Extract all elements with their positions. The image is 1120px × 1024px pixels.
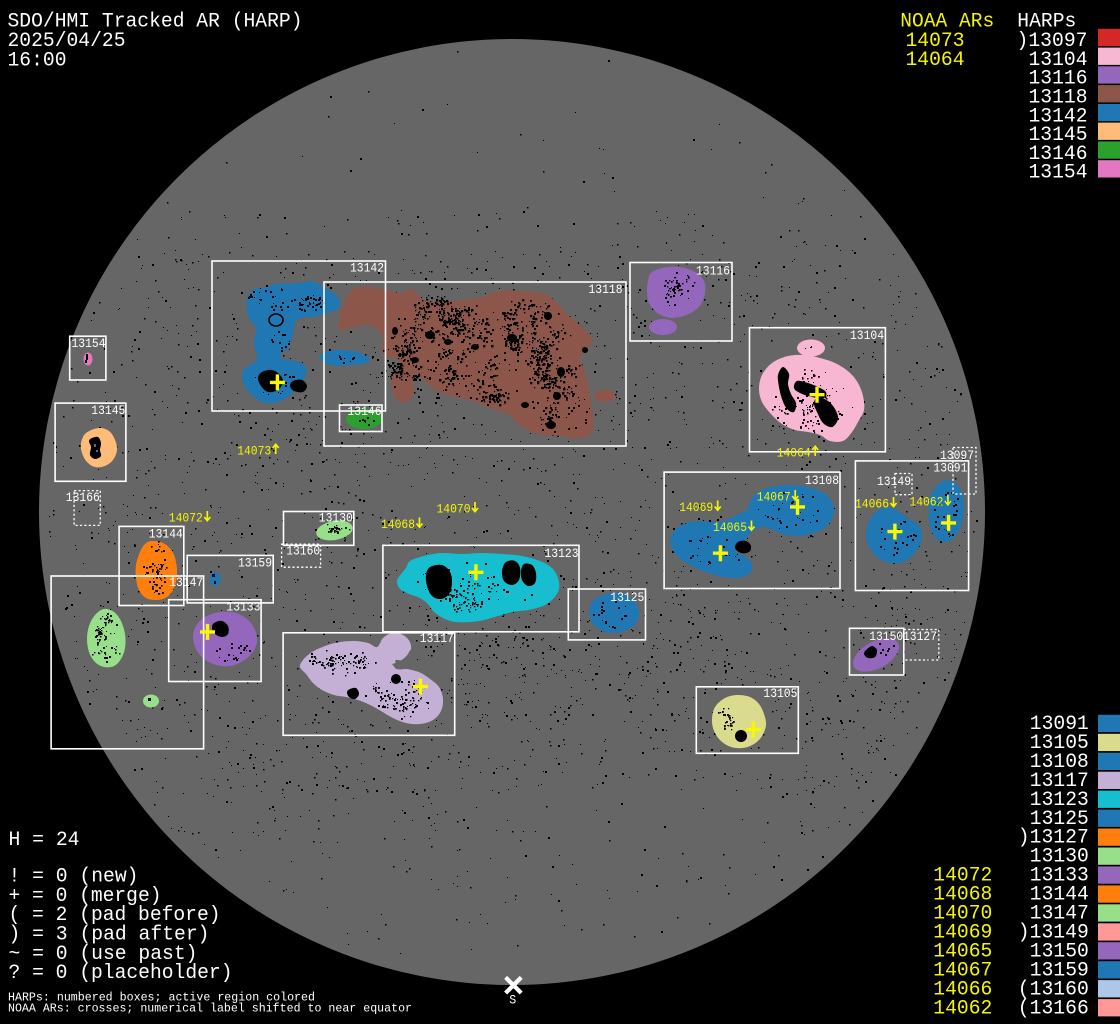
svg-text:13133: 13133 <box>226 601 260 615</box>
svg-text:14065: 14065 <box>713 521 747 535</box>
svg-text:13127: 13127 <box>903 630 937 644</box>
svg-text:13123: 13123 <box>545 547 579 561</box>
svg-text:13150: 13150 <box>869 630 903 644</box>
svg-text:14062: 14062 <box>909 496 943 510</box>
svg-text:13166: 13166 <box>66 491 100 505</box>
svg-text:13097: 13097 <box>940 449 974 463</box>
svg-text:(13166: (13166 <box>1018 997 1089 1020</box>
svg-text:14067: 14067 <box>757 491 791 505</box>
svg-text:13154: 13154 <box>1029 162 1088 185</box>
svg-text:S: S <box>509 994 516 1008</box>
svg-text:13116: 13116 <box>696 265 730 279</box>
svg-text:14064: 14064 <box>906 49 965 72</box>
svg-text:13142: 13142 <box>350 262 384 276</box>
svg-text:14072: 14072 <box>169 512 203 526</box>
svg-text:13117: 13117 <box>420 632 454 646</box>
svg-text:14069: 14069 <box>679 501 713 515</box>
svg-text:13146: 13146 <box>348 405 382 419</box>
svg-text:14062: 14062 <box>933 997 992 1020</box>
svg-text:13147: 13147 <box>169 576 203 590</box>
svg-text:13149: 13149 <box>877 475 911 489</box>
svg-text:13118: 13118 <box>589 283 623 297</box>
svg-text:13154: 13154 <box>72 337 106 351</box>
svg-text:16:00: 16:00 <box>8 50 67 73</box>
svg-text:14068: 14068 <box>381 518 415 532</box>
svg-text:13091: 13091 <box>933 462 967 476</box>
svg-text:13144: 13144 <box>149 528 183 542</box>
svg-text:H = 24: H = 24 <box>9 829 80 852</box>
svg-text:13105: 13105 <box>763 687 797 701</box>
svg-text:NOAA ARs: crosses; numerical l: NOAA ARs: crosses; numerical label shift… <box>8 1002 412 1016</box>
svg-text:13159: 13159 <box>238 557 272 571</box>
svg-text:14066: 14066 <box>855 498 889 512</box>
svg-text:14064: 14064 <box>777 447 811 461</box>
svg-text:13160: 13160 <box>286 545 320 559</box>
svg-text:13125: 13125 <box>610 591 644 605</box>
svg-text:13145: 13145 <box>91 404 125 418</box>
svg-text:? = 0 (placeholder): ? = 0 (placeholder) <box>9 962 233 985</box>
svg-text:13130: 13130 <box>319 512 353 526</box>
svg-text:14070: 14070 <box>437 503 471 517</box>
svg-text:13108: 13108 <box>805 474 839 488</box>
svg-text:14073: 14073 <box>237 445 271 459</box>
svg-text:13104: 13104 <box>850 329 884 343</box>
